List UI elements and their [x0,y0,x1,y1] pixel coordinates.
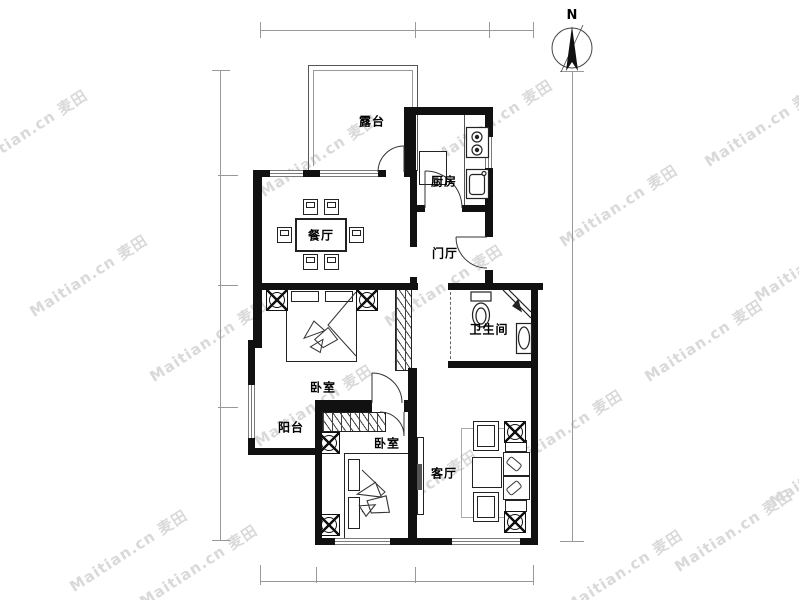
room-label-living: 客厅 [431,465,457,482]
coffee-table [472,457,502,488]
compass-crossline [561,25,583,72]
dimension-line [260,581,533,582]
dining-chair [277,227,292,243]
nightstand-lamp-icon [356,289,378,311]
dimension-line [260,22,261,38]
watermark: Maitian.cn 麦田 [0,84,91,176]
wall-segment [303,170,320,177]
nightstand-lamp-icon [266,289,288,311]
wall-segment [417,205,425,212]
kitchen-sink-basin [470,175,485,195]
toilet-tank [471,292,491,301]
watermark: Maitian.cn 麦田 [560,524,686,600]
dining-chair [324,199,339,215]
stove-burner-dot [475,148,478,151]
wall-segment [378,170,386,177]
wall-segment [448,361,538,368]
bath-sink-counter [517,324,532,354]
watermark: Maitian.cn 麦田 [750,214,799,306]
sofa-cushion [503,452,530,476]
window [485,137,492,168]
wall-segment [248,448,320,455]
dimension-line [415,567,416,583]
dimension-line [212,70,230,71]
pillow [291,291,319,302]
wall-segment [315,400,372,412]
dimension-line [560,541,584,542]
room-label-bedroom-upper: 卧室 [310,379,336,396]
bathroom-door-dashed [450,292,451,359]
wall-segment [485,107,493,137]
room-label-hall: 门厅 [432,245,458,262]
wall-segment [253,283,418,290]
wall-segment [404,107,416,172]
wardrobe-lower [322,412,386,432]
pillow [348,459,360,491]
bath-sink-basin [519,327,530,349]
wardrobe-upper [395,289,412,371]
wall-segment [404,107,493,115]
dimension-line [533,565,534,585]
watermark: Maitian.cn 麦田 [25,229,151,321]
tv-screen [417,464,422,490]
door-arc-bedroom-upper [372,373,402,403]
window [270,170,303,177]
compass-circle [552,28,592,68]
watermark: Maitian.cn 麦田 [700,79,799,171]
dimension-line [533,22,534,38]
dimension-line [218,407,238,408]
dimension-line [415,22,416,38]
dining-chair [303,254,318,270]
wall-segment [315,538,337,545]
dimension-line [489,22,490,38]
window [248,385,255,438]
dining-chair [303,199,318,215]
shower-corner-line [503,290,531,318]
dimension-line [316,567,317,583]
compass-needle [566,26,578,71]
window [320,170,378,177]
dimension-line [260,565,261,585]
wall-segment [315,405,322,545]
dining-chair [349,227,364,243]
dimension-line [220,70,221,540]
side-table-plant-icon [504,421,526,443]
pillow [325,291,353,302]
side-table-plant-icon [504,511,526,533]
sofa-cushion [503,476,530,500]
watermark: Maitian.cn 麦田 [765,419,799,511]
window [452,538,520,545]
wall-segment [410,177,417,247]
dimension-line [218,175,238,176]
wall-segment [462,205,493,212]
north-label: N [567,8,578,23]
wall-segment [531,283,538,545]
room-label-kitchen: 厨房 [431,173,457,190]
room-label-dining: 餐厅 [308,227,334,244]
watermark: Maitian.cn 麦田 [430,74,556,166]
kitchen-counter-edge [464,115,465,205]
window [335,538,390,545]
room-label-bedroom-lower: 卧室 [374,435,400,452]
shower-corner-line [509,290,531,312]
wall-segment [485,168,493,237]
stove-burner [472,145,482,155]
room-label-bathroom: 卫生间 [469,321,508,338]
armchair [473,421,499,451]
armchair [473,492,499,522]
compass [552,25,592,72]
shower-arrow [513,300,521,311]
wall-segment [408,368,417,545]
dimension-line [560,71,584,72]
dimension-line [260,30,533,31]
wall-segment [253,170,262,348]
dining-chair [324,254,339,270]
wall-segment [448,283,543,290]
dimension-line [218,285,238,286]
wall-segment [520,538,538,545]
pillow [348,497,360,529]
watermark: Maitian.cn 麦田 [640,294,766,386]
watermark: Maitian.cn 麦田 [555,159,681,251]
dimension-line [572,71,573,541]
wall-segment [408,538,454,545]
room-label-balcony: 阳台 [278,419,304,436]
wall-segment [248,340,255,385]
floorplan-canvas: 露台 厨房 餐厅 门厅 卫生间 卧室 阳台 卧室 客厅 N Maitian.cn… [0,0,799,600]
dimension-line [212,540,230,541]
room-label-terrace: 露台 [359,113,385,130]
